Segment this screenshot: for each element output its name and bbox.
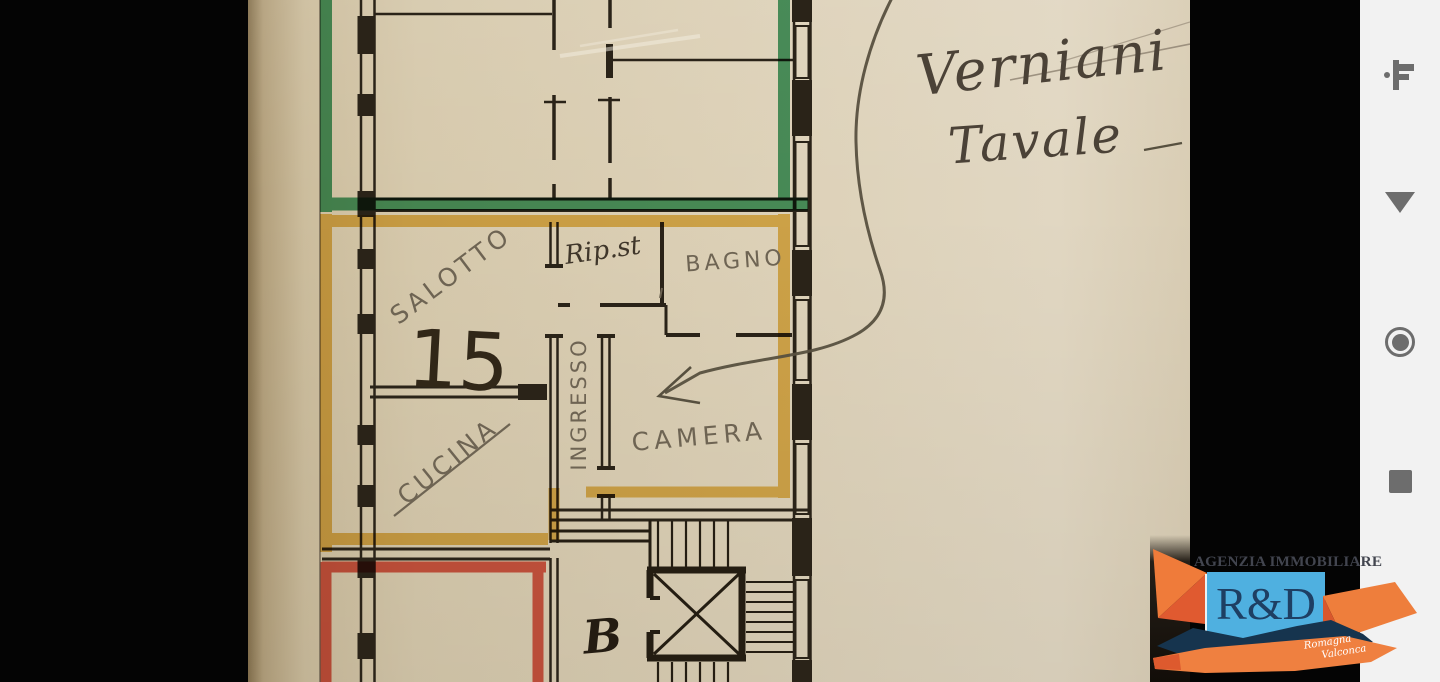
photo-viewer-screen: SALOTTO 15 Rip.st BAGNO INGRESSO CAMERA … (0, 0, 1440, 682)
navigation-sidebar (1360, 0, 1440, 682)
right-letterbox-bar (1190, 0, 1360, 682)
green-highlight-upper-unit (322, 0, 808, 212)
back-triangle-icon (1385, 192, 1415, 213)
label-ingresso: INGRESSO (567, 337, 591, 470)
label-room-number: 15 (405, 312, 512, 410)
label-ripostiglio: Rip.st (562, 230, 644, 271)
label-stair-b: B (579, 607, 624, 664)
wall-lines (320, 0, 811, 682)
label-cucina: CUCINA (392, 412, 504, 510)
home-circle-icon (1385, 327, 1415, 357)
note-line-1: Verniani (913, 18, 1171, 109)
label-bagno: BAGNO (685, 246, 787, 278)
photo-dark-corner (1150, 535, 1190, 682)
left-letterbox-bar (0, 0, 248, 682)
key-button[interactable] (1360, 47, 1440, 103)
floor-plan-photo[interactable]: SALOTTO 15 Rip.st BAGNO INGRESSO CAMERA … (248, 0, 1190, 682)
red-highlight-lower-unit (322, 562, 546, 682)
home-button[interactable] (1360, 314, 1440, 370)
recents-square-icon (1389, 470, 1412, 493)
room-labels: SALOTTO 15 Rip.st BAGNO INGRESSO CAMERA … (385, 220, 787, 664)
note-line-2: Tavale (946, 105, 1125, 175)
recents-button[interactable] (1360, 453, 1440, 509)
label-camera: CAMERA (631, 416, 768, 457)
floor-plan-drawing: SALOTTO 15 Rip.st BAGNO INGRESSO CAMERA … (248, 0, 1190, 682)
key-icon (1384, 59, 1416, 91)
cucina-underline (394, 424, 510, 516)
back-button[interactable] (1360, 174, 1440, 230)
handwritten-note: Verniani Tavale (913, 18, 1171, 175)
